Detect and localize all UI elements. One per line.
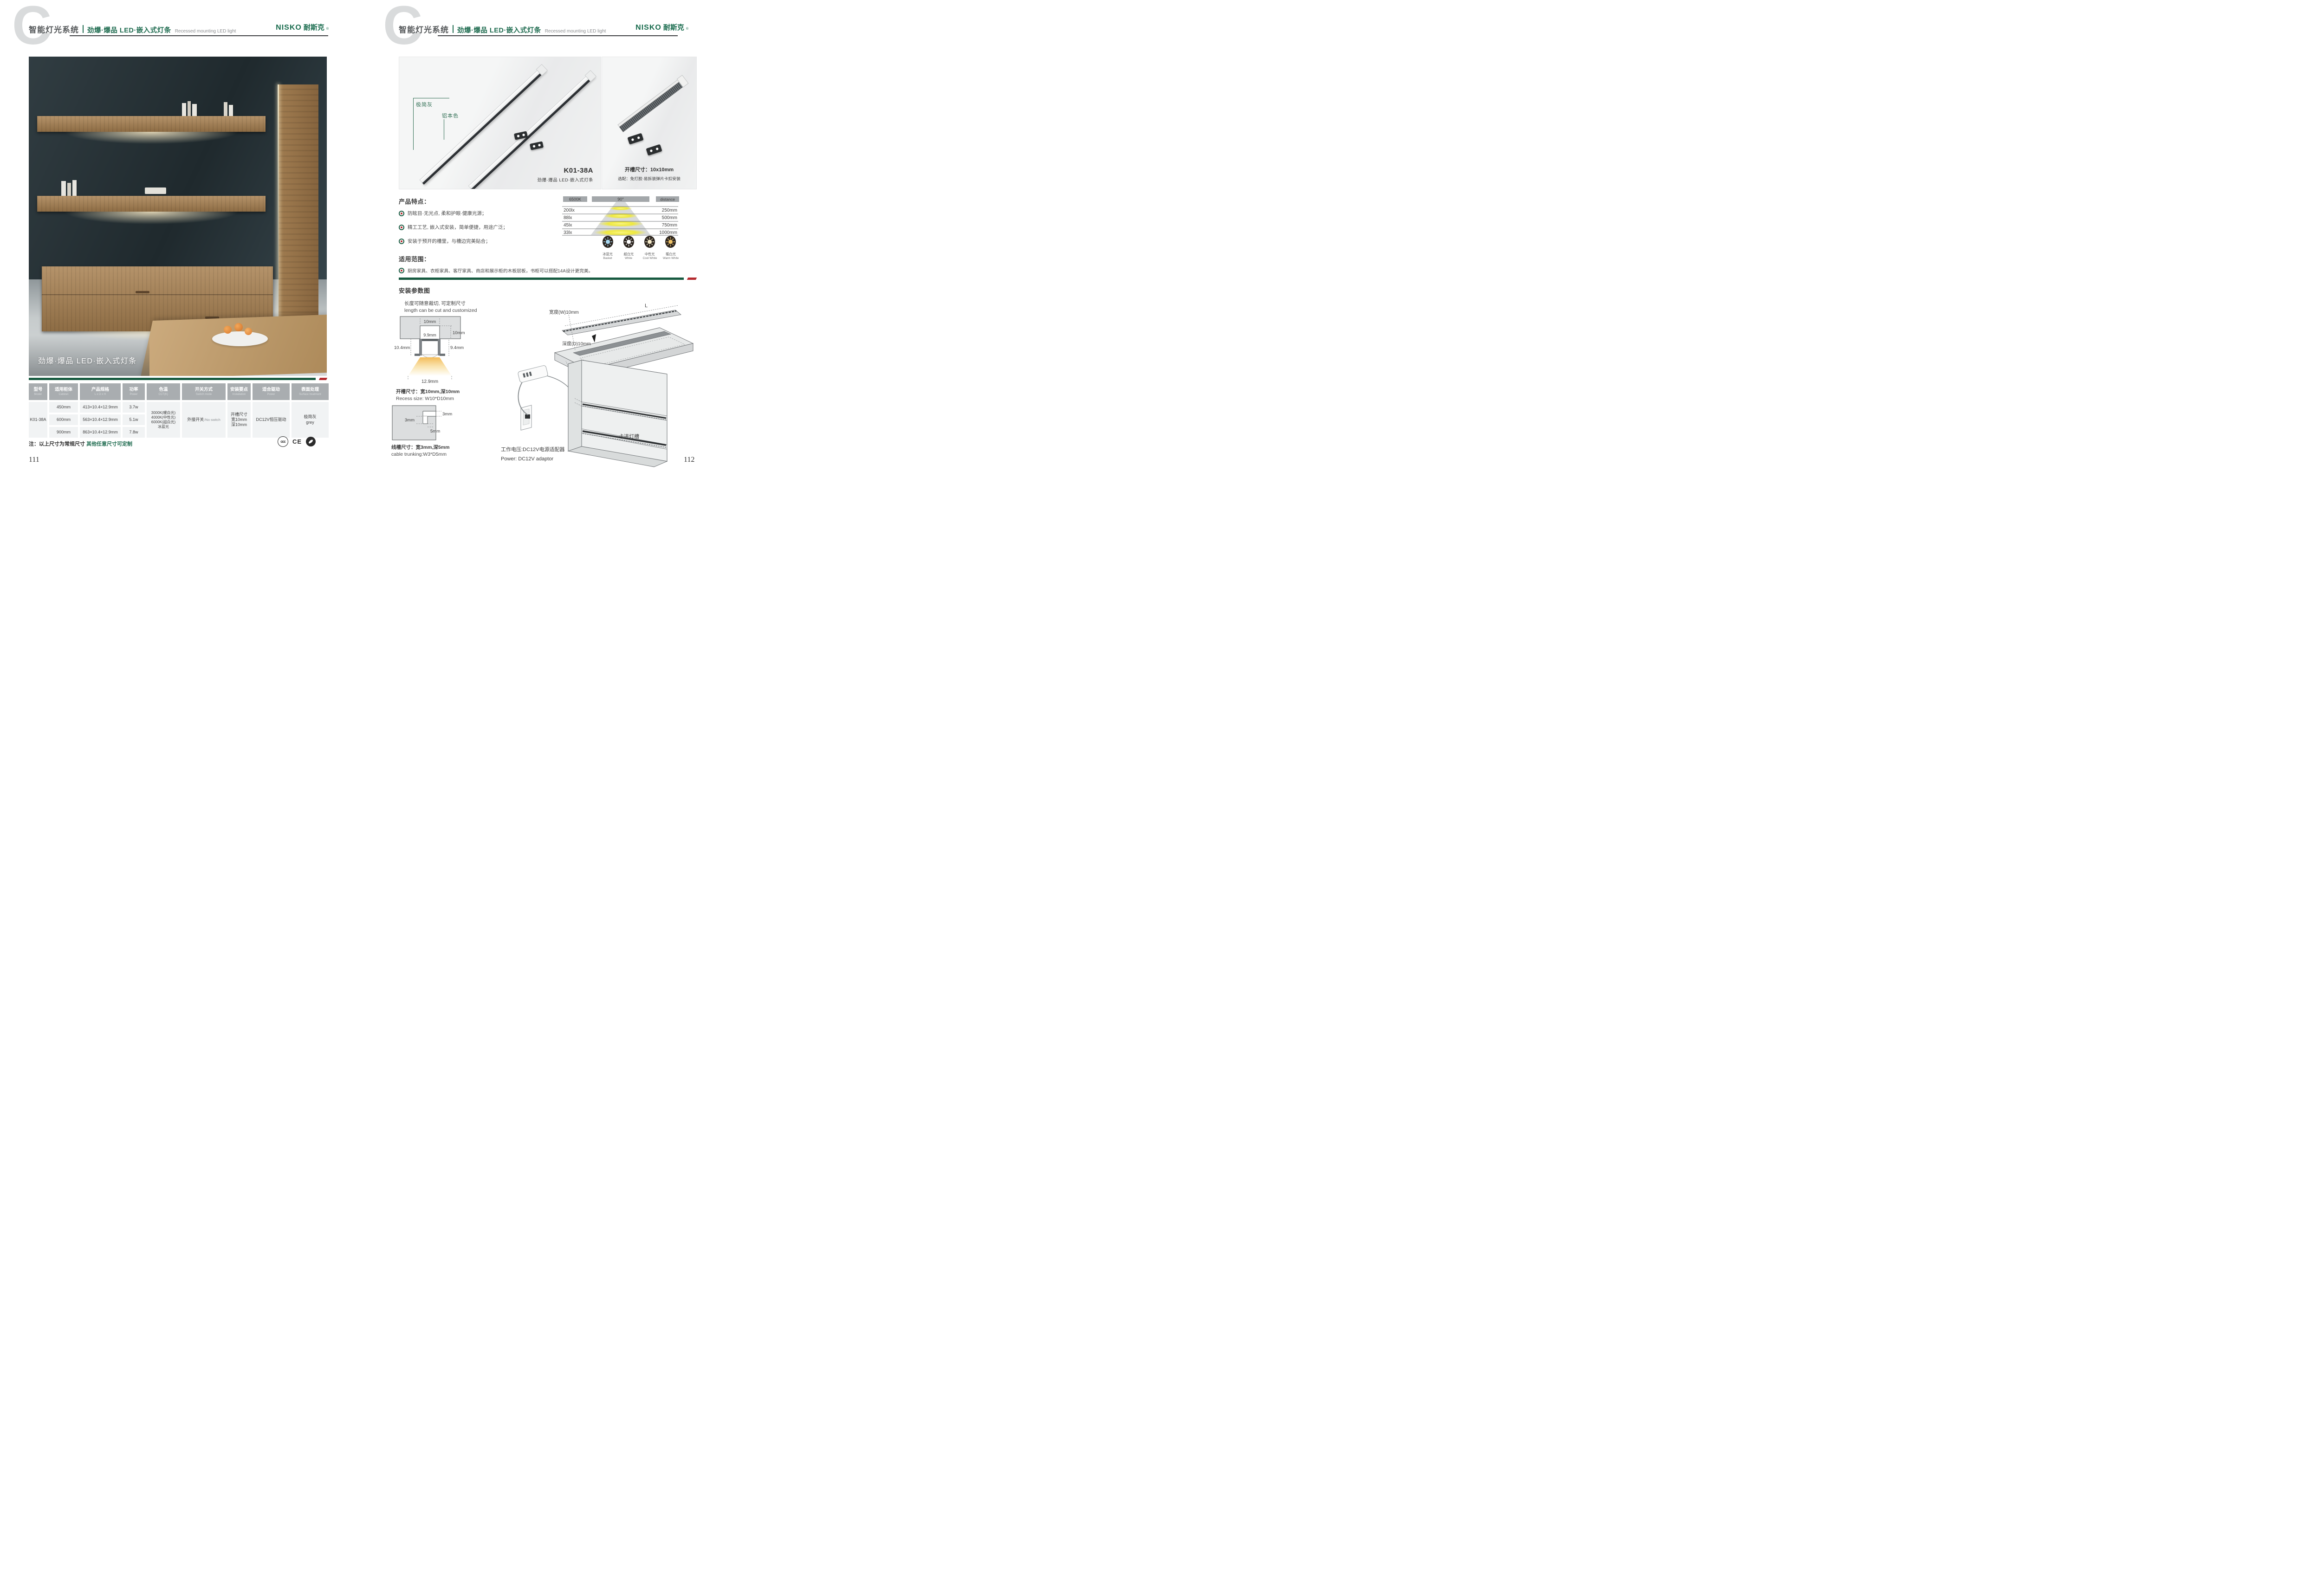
header-divider xyxy=(453,25,454,33)
certifications: ccc CE xyxy=(278,436,316,447)
groove-width-label: 宽度(W)10mm xyxy=(549,309,579,315)
dim-slot-depth: 5mm xyxy=(430,429,440,434)
photo-book xyxy=(192,104,197,116)
dim-beam-width: 12.9mm xyxy=(421,379,438,384)
dim-inner-width: 9.9mm xyxy=(423,333,436,337)
brand-logo: NISKO 耐斯克 ® xyxy=(635,22,688,32)
cabinet-side xyxy=(568,360,582,451)
board-block xyxy=(392,406,436,440)
col-header-driver: 适合驱动Power xyxy=(253,383,290,400)
photo-led-glow-2 xyxy=(42,212,261,237)
led-strip-grey xyxy=(420,66,546,185)
cct-option-iceblue: 冰蓝光 Basket xyxy=(598,236,617,260)
cable-slot xyxy=(423,411,436,416)
strip-length-label: L xyxy=(645,303,648,309)
photo-tall-cabinet xyxy=(279,84,318,335)
feature-item: 防眩目·无光点, 柔和护眼·健康光源； xyxy=(399,210,486,217)
chip-cct-label: 6500K xyxy=(569,197,581,202)
cct-option-white: 超白光 White xyxy=(619,236,638,260)
photo-book xyxy=(229,105,233,116)
divider-red xyxy=(319,378,327,380)
distance-label: 250mm xyxy=(662,208,677,213)
brand-logo-cn: 耐斯克 xyxy=(663,22,684,32)
header-rule xyxy=(70,35,328,36)
registered-mark: ® xyxy=(686,27,688,31)
slot-size-note: 开槽尺寸：10x10mm xyxy=(602,166,696,173)
mounting-clip xyxy=(530,141,544,150)
dim-notch-depth: 10mm xyxy=(453,330,465,336)
brand-logo-latin: NISKO xyxy=(276,24,302,32)
application-item: 厨房家具、衣柜家具、客厅家具、商店和展示柜的木板层板，书柜可以搭配14A设计更完… xyxy=(399,267,593,274)
cct-option-warmwhite: 暖白光 Warm White xyxy=(661,236,680,260)
trunking-en: cable trunking:W3*D5mm xyxy=(391,452,447,457)
photo-drawer-handle xyxy=(136,291,149,293)
cell-cabinet-600: 600mm xyxy=(49,414,78,425)
spring-clip xyxy=(627,133,643,144)
header-divider xyxy=(83,25,84,33)
cct-icon-row: 冰蓝光 Basket 超白光 White xyxy=(598,236,680,260)
cell-cct: 3000K(暖白光) 4000K(中性光) 6000K(超白光) 冰蓝光 xyxy=(147,402,180,438)
cct-option-coolwhite: 中性光 Cool White xyxy=(641,236,659,260)
label-leader-line xyxy=(444,119,444,140)
dim-left-height: 10.4mm xyxy=(394,345,410,350)
cell-surface: 极简灰 grey xyxy=(292,402,329,438)
chip-distance-label: distance xyxy=(660,197,675,202)
catalog-spread: C 智能灯光系统 劲爆·爆品 LED·嵌入式灯条 Recessed mounti… xyxy=(0,0,701,479)
features-title: 产品特点： xyxy=(399,197,430,206)
photo-fruit xyxy=(245,328,252,335)
profile-wall xyxy=(419,339,422,355)
size-note: 注：以上尺寸为常规尺寸 其他任意尺寸可定制 xyxy=(29,440,132,447)
recess-size-en: Recess size: W10*D10mm xyxy=(396,396,454,401)
cross-section-diagram: 10mm 10mm 9.9mm 10.4mm 9.4mm 12.9mm xyxy=(393,315,467,384)
system-title: 智能灯光系统 xyxy=(29,23,79,35)
product-title: 劲爆·爆品 LED·嵌入式灯条 xyxy=(457,25,541,35)
power-note-cn: 工作电压:DC12V电源适配器 xyxy=(501,446,565,452)
divider-green xyxy=(399,278,684,280)
photo-shelf-mid xyxy=(37,196,266,212)
strip-aluminium-label: 铝本色 xyxy=(442,112,459,119)
page-111: C 智能灯光系统 劲爆·爆品 LED·嵌入式灯条 Recessed mounti… xyxy=(0,0,350,479)
beam-pool xyxy=(609,207,632,211)
groove-depth-label: 深度(D)10mm xyxy=(562,341,591,347)
install-section-title: 安装参数图 xyxy=(399,286,430,295)
dim-top-width: 10mm xyxy=(424,319,436,324)
photo-tray xyxy=(145,187,166,194)
profile-wall xyxy=(438,339,441,355)
cell-spec-600: 563×10.4×12.9mm xyxy=(80,414,121,425)
product-subtitle: Recessed mounting LED light xyxy=(175,29,236,34)
feature-item: 安装于预开的槽里，与槽边完美贴合； xyxy=(399,238,491,245)
page-header: 智能灯光系统 劲爆·爆品 LED·嵌入式灯条 Recessed mounting… xyxy=(399,23,606,35)
light-cone xyxy=(408,357,452,376)
sun-icon xyxy=(602,236,614,249)
cut-note-cn: 长度可随意裁切, 可定制尺寸 xyxy=(404,300,466,307)
cert-rohs-icon xyxy=(306,437,316,446)
section-divider xyxy=(399,278,696,280)
product-photo: 劲爆·爆品 LED·嵌入式灯条 xyxy=(29,57,327,376)
bullet-target-icon xyxy=(399,268,404,273)
cell-switch: 外接开关/No switch xyxy=(182,402,226,438)
model-caption: 劲爆·爆品 LED·嵌入式灯条 xyxy=(538,176,593,183)
cell-power-600: 5.1w xyxy=(123,414,145,425)
divider-green xyxy=(29,378,316,380)
profile-flange xyxy=(415,354,420,356)
cell-driver: DC12V恒压驱动 xyxy=(253,402,290,438)
model-code: K01-38A xyxy=(538,167,593,174)
distance-label: 750mm xyxy=(662,223,677,228)
page-112: C 智能灯光系统 劲爆·爆品 LED·嵌入式灯条 Recessed mounti… xyxy=(350,0,701,479)
product-title: 劲爆·爆品 LED·嵌入式灯条 xyxy=(87,25,171,35)
profile-flange xyxy=(440,354,445,356)
photo-led-glow-1 xyxy=(42,132,261,156)
cell-power-450: 3.7w xyxy=(123,402,145,413)
gallery-caption: K01-38A 劲爆·爆品 LED·嵌入式灯条 xyxy=(538,167,593,183)
profile-top xyxy=(419,339,441,341)
accessory-caption: 开槽尺寸：10x10mm 选配：免打胶·易拆装弹片卡扣安装 xyxy=(602,166,696,181)
recess-size-cn: 开槽尺寸：宽10mm,深10mm xyxy=(396,388,460,395)
distance-label: 500mm xyxy=(662,215,677,220)
photo-fruit xyxy=(224,326,232,334)
cabinet-install-diagram: 工作电压:DC12V电源适配器 Power: DC12V adaptor 卡进灯… xyxy=(500,355,700,474)
dc12v-adapter xyxy=(518,365,548,383)
divider-red xyxy=(687,278,697,280)
beam-distribution-chart: 6500K 90° distance 200lx 88lx 45lx 33lx … xyxy=(560,196,680,236)
diffuser xyxy=(422,355,438,358)
photo-caption: 劲爆·爆品 LED·嵌入式灯条 xyxy=(38,355,137,366)
header-rule xyxy=(438,35,678,36)
sun-icon xyxy=(665,236,676,249)
cell-model: K01-38A xyxy=(29,402,47,438)
photo-book xyxy=(182,103,186,116)
cable-trunk-diagram: 3mm 3mm 5mm xyxy=(389,404,454,442)
aluminium-profile xyxy=(617,77,687,132)
system-title: 智能灯光系统 xyxy=(399,23,449,35)
brand-logo-latin: NISKO xyxy=(635,24,661,32)
col-header-surface: 表面处理Surface treatment xyxy=(292,383,329,400)
dim-slot-height: 3mm xyxy=(442,412,452,417)
power-note-en: Power: DC12V adaptor xyxy=(501,456,553,462)
bullet-target-icon xyxy=(399,239,404,244)
spec-table: 型号Model 适用柜体Cabinet 产品规格L x D x H 功率Powe… xyxy=(29,383,329,438)
col-header-model: 型号Model xyxy=(29,383,47,400)
photo-shelf-top xyxy=(37,116,266,132)
photo-plate xyxy=(212,331,268,346)
lux-label: 33lx xyxy=(564,230,572,235)
label-leader-line xyxy=(413,98,414,150)
gallery-strips-photo: 极简灰 铝本色 K01-38A 劲爆·爆品 LED·嵌入式灯条 xyxy=(399,57,601,189)
insert-arrow xyxy=(592,334,596,342)
chip-angle-label: 90° xyxy=(617,197,624,202)
photo-drawer-divider xyxy=(42,294,273,295)
registered-mark: ® xyxy=(326,27,329,31)
strip-grey-label: 极简灰 xyxy=(416,101,433,108)
cert-ccc-icon: ccc xyxy=(278,436,288,447)
dim-slot-width: 3mm xyxy=(405,418,415,423)
photo-fruit xyxy=(234,323,243,331)
distance-label: 1000mm xyxy=(659,230,677,235)
cell-spec-900: 863×10.4×12.9mm xyxy=(80,427,121,438)
cell-install: 开槽尺寸 宽10mm 深10mm xyxy=(227,402,251,438)
photo-book xyxy=(188,101,191,116)
application-title: 适用范围： xyxy=(399,254,430,263)
col-header-cct: 色温CCT(K) xyxy=(147,383,180,400)
cell-spec-450: 413×10.4×12.9mm xyxy=(80,402,121,413)
dim-right-height: 9.4mm xyxy=(450,345,464,350)
col-header-install: 安装要点Installation xyxy=(227,383,251,400)
lux-label: 200lx xyxy=(564,208,575,213)
beam-pool xyxy=(594,229,647,236)
col-header-spec: 产品规格L x D x H xyxy=(80,383,121,400)
page-number-right: 112 xyxy=(684,456,694,464)
feature-item: 精工工艺, 嵌入式安装，简单便捷，用途广泛； xyxy=(399,224,508,231)
spring-clip xyxy=(646,144,662,155)
cell-cabinet-900: 900mm xyxy=(49,427,78,438)
page-header: 智能灯光系统 劲爆·爆品 LED·嵌入式灯条 Recessed mounting… xyxy=(29,23,236,35)
sun-icon xyxy=(644,236,655,249)
cell-cabinet-450: 450mm xyxy=(49,402,78,413)
clip-note: 卡进灯槽 xyxy=(619,433,639,439)
col-header-power: 功率Power xyxy=(123,383,145,400)
lux-label: 88lx xyxy=(564,215,572,220)
col-header-switch: 开关方式Switch mode xyxy=(182,383,226,400)
brand-logo-cn: 耐斯克 xyxy=(304,22,324,32)
photo-led-edge xyxy=(278,84,279,335)
cell-power-900: 7.8w xyxy=(123,427,145,438)
cert-ce-icon: CE xyxy=(292,438,302,445)
label-leader-line xyxy=(413,98,449,98)
photo-book xyxy=(61,181,66,196)
photo-book xyxy=(67,183,71,196)
cable-slot-vertical xyxy=(423,416,428,424)
brand-logo: NISKO 耐斯克 ® xyxy=(276,22,329,32)
lux-label: 45lx xyxy=(564,223,572,228)
bullet-target-icon xyxy=(399,225,404,230)
product-subtitle: Recessed mounting LED light xyxy=(545,29,606,34)
section-divider xyxy=(29,378,327,380)
clip-option-note: 选配：免打胶·易拆装弹片卡扣安装 xyxy=(602,175,696,181)
page-number-left: 111 xyxy=(29,456,39,464)
gallery-profile-photo: 开槽尺寸：10x10mm 选配：免打胶·易拆装弹片卡扣安装 xyxy=(602,57,697,189)
sun-icon xyxy=(623,236,635,249)
photo-book xyxy=(224,102,227,116)
col-header-cabinet: 适用柜体Cabinet xyxy=(49,383,78,400)
photo-book xyxy=(72,180,77,196)
trunking-cn: 线槽尺寸：宽3mm,深5mm xyxy=(391,444,449,451)
cut-note-en: length can be cut and customized xyxy=(404,308,477,313)
bullet-target-icon xyxy=(399,211,404,216)
